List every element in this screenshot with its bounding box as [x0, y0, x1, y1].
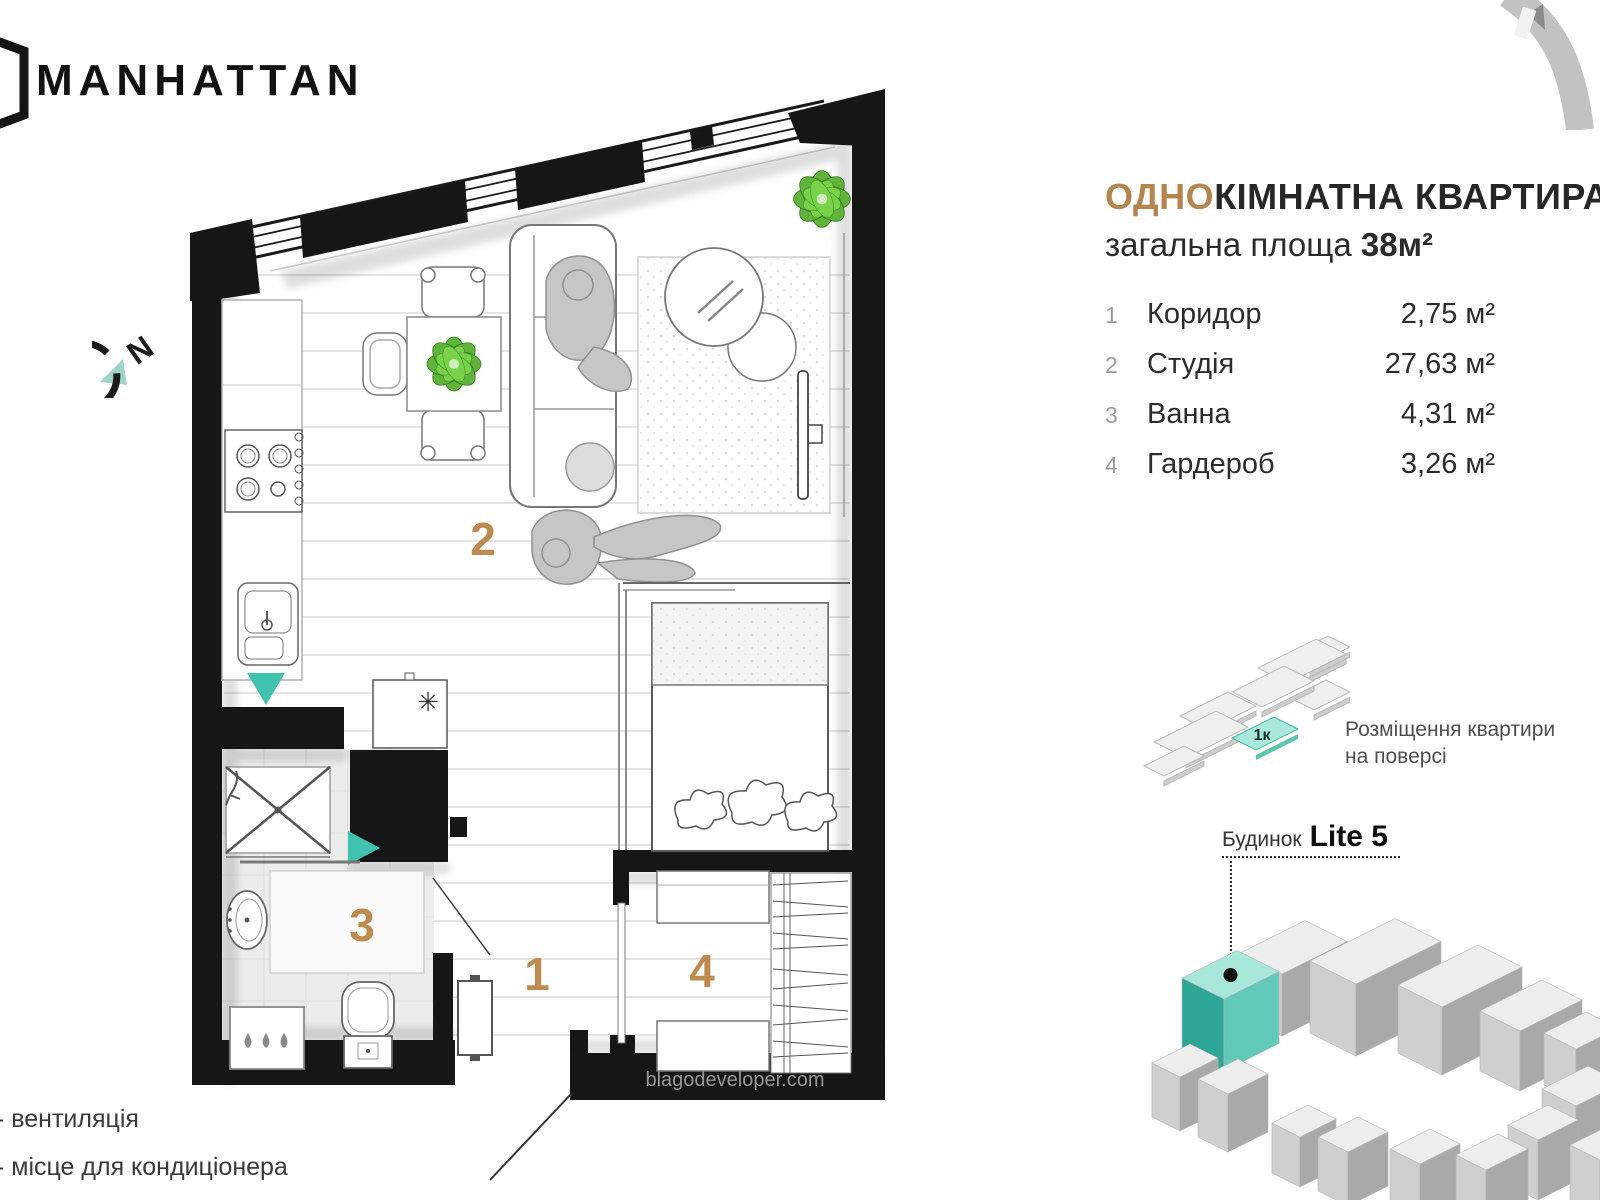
brand-logo-mark	[0, 36, 30, 130]
boiler-closet: ✳	[373, 673, 447, 748]
wash-basin	[227, 891, 267, 949]
room-area: 3,26 м²	[1401, 448, 1495, 481]
apartment-title-highlight: ОДНО	[1105, 176, 1214, 217]
area-subtitle: загальна площа 38м²	[1105, 226, 1433, 264]
washing-machine	[230, 1007, 304, 1069]
room-number: 2	[1105, 352, 1147, 379]
room-number: 1	[1105, 302, 1147, 329]
radiator	[458, 975, 492, 1061]
room-area: 2,75 м²	[1401, 298, 1495, 331]
building-complex-diagram	[1140, 855, 1600, 1200]
room-row: 1 Коридор 2,75 м²	[1105, 298, 1495, 331]
legend-ventilation: - вентиляція	[0, 1105, 288, 1134]
room-number: 3	[1105, 402, 1147, 429]
room-label-1: 1	[524, 948, 550, 1000]
compass: N	[92, 298, 188, 398]
bathroom-door-swing	[433, 878, 490, 955]
room-name: Ванна	[1147, 398, 1401, 431]
ventilation-marker-icon	[247, 673, 285, 705]
bath-mat	[270, 871, 424, 973]
kitchen	[222, 300, 303, 680]
room-label-4: 4	[689, 945, 715, 997]
floor-placement-diagram: 1к	[1140, 630, 1350, 815]
room-area: 4,31 м²	[1401, 398, 1495, 431]
room-name: Коридор	[1147, 298, 1401, 331]
corner-arc-decoration	[1490, 0, 1600, 130]
toilet	[342, 982, 394, 1068]
room-area: 27,63 м²	[1385, 348, 1495, 381]
kitchen-sink	[238, 583, 298, 665]
bed	[652, 603, 837, 851]
floor-plan: blagodeveloper.com	[190, 85, 905, 1185]
room-number: 4	[1105, 452, 1147, 479]
room-label-2: 2	[470, 513, 496, 565]
building-label: БудинокLite 5	[1222, 820, 1388, 854]
room-name: Студія	[1147, 348, 1385, 381]
plan-legend: - вентиляція - місце для кондиціонера	[0, 1105, 288, 1201]
apartment-title: ОДНОКІМНАТНА КВАРТИРА	[1105, 176, 1600, 218]
room-name: Гардероб	[1147, 448, 1401, 481]
entrance-door-swing	[490, 1093, 572, 1180]
total-area-value: 38м²	[1361, 226, 1433, 263]
unit-label: 1к	[1254, 727, 1272, 744]
floor-placement-caption: Розміщення квартири на поверсі	[1345, 716, 1555, 770]
building-marker-dot	[1224, 968, 1238, 982]
stove	[225, 430, 303, 512]
room-row: 3 Ванна 4,31 м²	[1105, 398, 1495, 431]
wardrobe-door	[618, 903, 625, 1043]
rooms-table: 1 Коридор 2,75 м² 2 Студія 27,63 м² 3 Ва…	[1105, 298, 1495, 498]
boiler-symbol: ✳	[417, 687, 439, 717]
room-label-3: 3	[349, 899, 375, 951]
room-row: 2 Студія 27,63 м²	[1105, 348, 1495, 381]
legend-ac: - місце для кондиціонера	[0, 1153, 288, 1182]
room-row: 4 Гардероб 3,26 м²	[1105, 448, 1495, 481]
compass-label: N	[120, 329, 160, 372]
